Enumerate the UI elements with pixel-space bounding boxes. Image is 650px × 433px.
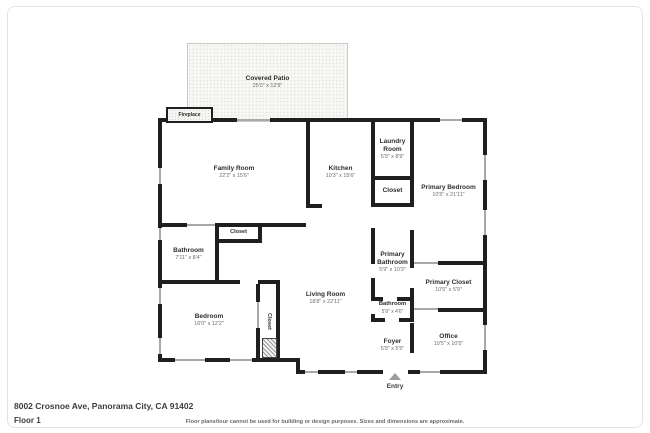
wall-segment xyxy=(483,235,487,325)
wall-segment xyxy=(296,358,300,374)
room-dims: 5'9" x 10'3" xyxy=(379,267,406,275)
wall-segment xyxy=(410,323,414,353)
room-dims: 7'11" x 8'4" xyxy=(175,255,201,263)
wall-segment xyxy=(371,122,375,178)
floor-label: Floor 1 xyxy=(14,416,41,425)
wall-segment xyxy=(483,122,487,155)
wall-segment xyxy=(215,227,219,284)
door-opening-marker xyxy=(414,262,438,264)
wall-segment xyxy=(371,176,414,180)
room-name: Closet xyxy=(383,187,403,195)
room-name: Foyer xyxy=(384,338,402,346)
wall-segment xyxy=(258,223,262,243)
room-name: Bedroom xyxy=(195,313,224,321)
wall-segment xyxy=(483,180,487,210)
window-marker xyxy=(159,288,161,304)
window-marker xyxy=(484,155,486,180)
room-dims: 10'5" x 21'11" xyxy=(432,192,464,200)
door-opening-marker xyxy=(414,308,438,310)
room-bathroom-left: Bathroom 7'11" x 8'4" xyxy=(162,227,215,282)
utility-hatch-box xyxy=(262,338,277,358)
window-marker xyxy=(230,359,252,361)
window-marker xyxy=(305,371,318,373)
room-name: Closet xyxy=(265,313,272,330)
wall-segment xyxy=(438,308,483,312)
wall-segment xyxy=(483,350,487,374)
room-foyer: Foyer 5'9" x 5'5" xyxy=(375,322,410,370)
room-name: Bathroom xyxy=(173,247,204,255)
wall-segment xyxy=(270,118,440,122)
wall-segment xyxy=(371,297,383,301)
room-bathroom-small: Bathroom 5'9" x 4'6" xyxy=(375,299,410,318)
wall-segment xyxy=(318,370,345,374)
room-dims: 10'5" x 10'5" xyxy=(434,341,464,349)
wall-segment xyxy=(410,178,414,205)
wall-segment xyxy=(158,354,162,362)
entry-arrow-icon xyxy=(389,373,401,380)
room-laundry-closet: Closet xyxy=(375,180,410,203)
room-dims: 22'2" x 15'6" xyxy=(219,173,249,181)
room-bedroom: Bedroom 16'0" x 12'2" xyxy=(162,284,256,358)
door-opening-marker xyxy=(187,224,215,226)
property-address: 8002 Crosnoe Ave, Panorama City, CA 9140… xyxy=(14,401,193,411)
room-family-room: Family Room 22'2" x 15'6" xyxy=(162,122,306,223)
window-marker xyxy=(440,119,462,121)
window-marker xyxy=(159,228,161,240)
wall-segment xyxy=(371,203,414,207)
room-name: Primary Closet xyxy=(426,279,472,287)
wall-segment xyxy=(371,318,385,322)
wall-segment xyxy=(306,204,322,208)
room-primary-bathroom: Primary Bathroom 5'9" x 10'3" xyxy=(375,228,410,297)
room-primary-closet: Primary Closet 10'5" x 5'9" xyxy=(414,265,483,308)
window-marker xyxy=(420,371,440,373)
wall-segment xyxy=(357,370,383,374)
wall-segment xyxy=(306,122,310,208)
room-name: Closet xyxy=(230,229,247,236)
room-dims: 16'0" x 12'2" xyxy=(194,321,224,329)
room-living-room: Living Room 18'8" x 22'11" xyxy=(280,227,371,370)
wall-segment xyxy=(158,304,162,338)
room-laundry: Laundry Room 5'9" x 8'9" xyxy=(375,122,410,178)
room-name: Bathroom xyxy=(379,301,406,308)
wall-segment xyxy=(408,370,420,374)
room-dims: 10'3" x 15'6" xyxy=(326,173,356,181)
room-dims: 5'9" x 5'5" xyxy=(381,346,405,354)
wall-segment xyxy=(158,223,187,227)
wall-segment xyxy=(438,261,487,265)
room-name: Laundry Room xyxy=(375,138,410,154)
room-primary-bedroom: Primary Bedroom 10'5" x 21'11" xyxy=(414,122,483,261)
room-name: Office xyxy=(439,333,457,341)
wall-segment xyxy=(158,122,162,168)
window-marker xyxy=(175,359,205,361)
room-dims: 25'0" x 12'9" xyxy=(253,83,283,91)
wall-segment xyxy=(256,284,260,302)
room-dims: 18'8" x 22'11" xyxy=(309,299,341,307)
window-marker xyxy=(345,371,357,373)
room-name: Covered Patio xyxy=(246,75,290,83)
window-marker xyxy=(484,210,486,235)
room-dims: 5'9" x 8'9" xyxy=(381,154,405,162)
wall-segment xyxy=(410,288,414,318)
disclaimer-text: Floor plans/tour cannot be used for buil… xyxy=(160,419,490,425)
window-marker xyxy=(159,338,161,354)
wall-segment xyxy=(440,370,483,374)
door-opening-marker xyxy=(257,302,259,328)
wall-segment xyxy=(252,358,300,362)
room-name: Living Room xyxy=(306,291,345,299)
wall-segment xyxy=(158,184,162,228)
room-name: Family Room xyxy=(214,165,255,173)
wall-segment xyxy=(410,122,414,178)
window-marker xyxy=(484,325,486,350)
room-name: Fireplace xyxy=(179,112,201,118)
wall-segment xyxy=(215,239,262,243)
room-name: Primary Bedroom xyxy=(421,184,476,192)
wall-segment xyxy=(162,280,240,284)
fireplace: Fireplace xyxy=(166,107,213,123)
wall-segment xyxy=(205,358,230,362)
wall-segment xyxy=(371,228,375,264)
room-dims: 5'9" x 4'6" xyxy=(382,309,404,316)
wall-segment xyxy=(399,318,414,322)
wall-segment xyxy=(397,297,414,301)
wall-segment xyxy=(256,328,260,358)
room-name: Kitchen xyxy=(329,165,353,173)
room-office: Office 10'5" x 10'5" xyxy=(414,312,483,370)
window-marker xyxy=(159,168,161,184)
room-name: Primary Bathroom xyxy=(375,251,410,267)
wall-segment xyxy=(371,178,375,205)
entry-label: Entry xyxy=(375,383,415,390)
room-dims: 10'5" x 5'9" xyxy=(435,287,462,295)
window-marker xyxy=(237,119,270,121)
